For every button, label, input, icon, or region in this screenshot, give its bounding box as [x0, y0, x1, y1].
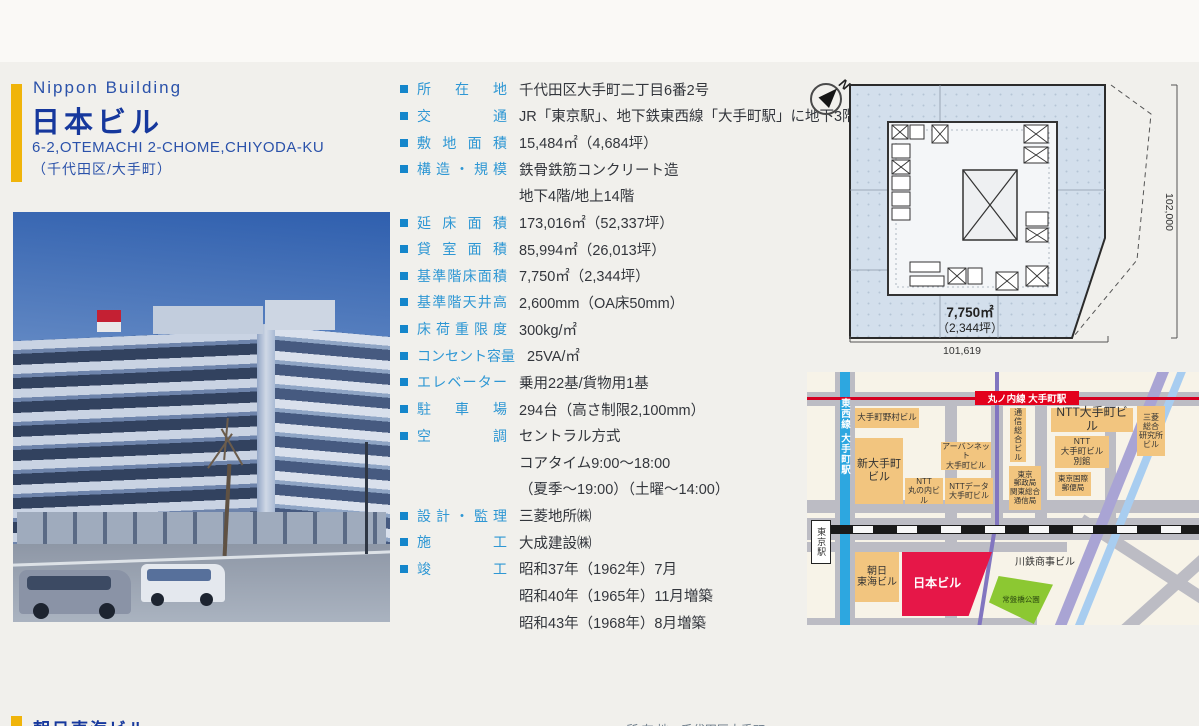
spec-bullet-icon: [400, 352, 408, 360]
spec-value: 千代田区大手町二丁目6番2号: [519, 79, 709, 100]
spec-label: 延床面積: [417, 213, 507, 233]
spec-value: 三菱地所㈱: [519, 505, 592, 526]
spec-value: 乗用22基/貨物用1基: [519, 372, 649, 393]
spec-value: 昭和40年（1965年）11月増築: [519, 585, 713, 606]
map-building-label: 大手町野村ビル: [857, 413, 917, 423]
spec-label: 設計・監理: [417, 506, 507, 526]
map-building-label: 郵便局: [1062, 484, 1085, 493]
building-footprint: [888, 122, 1057, 295]
spec-label: 貸室面積: [417, 239, 507, 259]
spec-bullet-icon: [400, 85, 408, 93]
partial-next-entry: 朝日東海ビル ■所 在 地 千代田区大手町: [11, 713, 1199, 726]
map-building-label: 通信局: [1014, 497, 1037, 506]
spec-value: 173,016㎡（52,337坪）: [519, 212, 674, 233]
spec-label: 空調: [417, 426, 507, 446]
map-building-label: NTT大手町ビル: [1051, 406, 1133, 434]
spec-bullet-icon: [400, 565, 408, 573]
spec-label: 交通: [417, 106, 507, 126]
map-building-urbannet-otemachi: アーバンネット大手町ビル: [941, 442, 991, 470]
map-building-tsushin-sogo: 通信総合ビル: [1010, 408, 1026, 462]
spec-label: コンセント容量: [417, 346, 515, 366]
spec-value: 300kg/㎡: [519, 319, 577, 340]
spec-row: 貸室面積85,994㎡（26,013坪）: [400, 236, 800, 263]
map-building-label: 川鉄商事ビル: [1015, 557, 1075, 569]
page-top-margin: [0, 0, 1199, 62]
accent-bar: [11, 84, 22, 182]
spec-value: 大成建設㈱: [519, 532, 592, 553]
spec-label: 構造・規模: [417, 159, 507, 179]
map-building-label: 通信総合ビル: [1013, 408, 1022, 462]
spec-bullet-icon: [400, 219, 408, 227]
map-building-label: 大手町ビル: [949, 491, 989, 500]
map-building-tokiwabashi-park: 常盤橋公園: [989, 576, 1053, 624]
spec-bullet-icon: [400, 378, 408, 386]
next-entry-spec-fragment: ■所 在 地 千代田区大手町: [619, 721, 765, 726]
spec-value: 鉄骨鉄筋コンクリート造: [519, 159, 679, 180]
spec-row: 駐車場294台（高さ制限2,100mm）: [400, 396, 800, 423]
map-building-label: NTTデータ: [949, 482, 989, 491]
map-building-asahi-tokai: 朝日東海ビル: [855, 552, 899, 602]
plan-height-dimension: 102,000: [1163, 193, 1175, 231]
spec-value: セントラル方式: [519, 425, 621, 446]
map-building-label: 丸の内ビル: [905, 486, 943, 504]
map-building-ntt-otemachi: NTT大手町ビル: [1051, 408, 1133, 432]
spec-row: 基準階床面積7,750㎡（2,344坪）: [400, 262, 800, 289]
spec-row: 設計・監理三菱地所㈱: [400, 502, 800, 529]
spec-label: 基準階天井高: [417, 292, 507, 312]
map-building-label: 東海ビル: [857, 577, 897, 589]
map-building-mitsubishi-research: 三菱総合研究所ビル: [1137, 406, 1165, 456]
spec-row: 敷地面積15,484㎡（4,684坪）: [400, 129, 800, 156]
spec-value: （夏季～19:00）（土曜～14:00）: [519, 478, 729, 499]
photo-penthouse: [153, 306, 263, 334]
spec-row: 基準階天井高2,600mm（OA床50mm）: [400, 289, 800, 316]
north-compass-icon: N: [811, 76, 853, 114]
spec-row: 地下4階/地上14階: [400, 183, 800, 210]
spec-label: 所在地: [417, 79, 507, 99]
spec-value: 25VA/㎡: [527, 345, 580, 366]
photo-roof-sign: [97, 310, 121, 332]
address-en: 6-2,OTEMACHI 2-CHOME,CHIYODA-KU: [32, 139, 324, 156]
map-building-label: アーバンネット: [941, 442, 991, 460]
spec-row: コアタイム9:00～18:00: [400, 449, 800, 476]
spec-bullet-icon: [400, 432, 408, 440]
map-building-label: 朝日: [867, 566, 887, 578]
map-building-label: 常盤橋公園: [1002, 596, 1040, 605]
spec-bullet-icon: [400, 165, 408, 173]
spec-bullet-icon: [400, 139, 408, 147]
plan-area-tsubo-label: （2,344坪）: [937, 321, 1003, 335]
map-building-label: 研究所: [1139, 431, 1163, 440]
map-building-tokyo-yuseikyoku: 東京郵政局関東総合通信局: [1009, 466, 1041, 510]
spec-row: 昭和43年（1968年）8月増築: [400, 609, 800, 636]
map-building-label: 大手町ビル: [946, 461, 986, 470]
spec-row: エレベーター乗用22基/貨物用1基: [400, 369, 800, 396]
map-building-label: 三菱: [1143, 413, 1159, 422]
photo-penthouse-2: [265, 300, 335, 330]
map-building-nippon-building: 日本ビル: [902, 552, 992, 616]
spec-value: 7,750㎡（2,344坪）: [519, 265, 650, 286]
spec-value: 2,600mm（OA床50mm）: [519, 292, 684, 313]
spec-row: 所在地千代田区大手町二丁目6番2号: [400, 76, 800, 103]
map-building-otemachi-nomura: 大手町野村ビル: [855, 408, 919, 428]
map-building-label: 新大手町: [857, 458, 901, 471]
spec-row: 交通JR「東京駅」、地下鉄東西線「大手町駅」に地下3階で直結: [400, 103, 800, 130]
map-building-tokyo-intl-post: 東京国際郵便局: [1055, 472, 1091, 496]
spec-bullet-icon: [400, 272, 408, 280]
spec-bullet-icon: [400, 112, 408, 120]
spec-row: 竣工昭和37年（1962年）7月: [400, 556, 800, 583]
map-building-tokyo-station: 東京駅: [811, 520, 831, 564]
spec-value: 294台（高さ制限2,100mm）: [519, 399, 705, 420]
spec-row: 延床面積173,016㎡（52,337坪）: [400, 209, 800, 236]
spec-row: 床荷重限度300kg/㎡: [400, 316, 800, 343]
elevator-core: [963, 170, 1017, 240]
spec-bullet-icon: [400, 405, 408, 413]
spec-row: 構造・規模鉄骨鉄筋コンクリート造: [400, 156, 800, 183]
spec-bullet-icon: [400, 538, 408, 546]
plan-area-label: 7,750㎡: [946, 304, 994, 320]
tozai-station-label: 東西線 大手町駅: [840, 398, 851, 475]
spec-value: 地下4階/地上14階: [519, 185, 634, 206]
spec-bullet-icon: [400, 245, 408, 253]
photo-car-van: [19, 570, 131, 614]
spec-value: 15,484㎡（4,684坪）: [519, 132, 658, 153]
next-entry-title: 朝日東海ビル: [33, 715, 147, 726]
map-building-label: ビル: [868, 471, 890, 484]
spec-value: 昭和43年（1968年）8月増築: [519, 612, 706, 633]
building-name-en: Nippon Building: [33, 78, 182, 98]
spec-row: 空調セントラル方式: [400, 422, 800, 449]
map-building-label: 東京駅: [816, 527, 826, 557]
marunouchi-station-banner: 丸ノ内線 大手町駅: [975, 391, 1079, 405]
spec-value: 85,994㎡（26,013坪）: [519, 239, 666, 260]
spec-row: コンセント容量25VA/㎡: [400, 342, 800, 369]
spec-label: 床荷重限度: [417, 319, 507, 339]
spec-row: （夏季～19:00）（土曜～14:00）: [400, 476, 800, 503]
map-building-ntt-marunouchi: NTT丸の内ビル: [905, 478, 943, 504]
district-map: 東西線 大手町駅 丸ノ内線 大手町駅 大手町野村ビル新大手町ビルアーバンネット大…: [807, 372, 1199, 625]
photo-storefront-band: [17, 512, 386, 546]
spec-bullet-icon: [400, 512, 408, 520]
spec-row: 施工大成建設㈱: [400, 529, 800, 556]
map-building-label: ビル: [1143, 440, 1159, 449]
map-building-label: 日本ビル: [913, 577, 961, 591]
floor-plan: N: [800, 70, 1199, 362]
spec-label: 基準階床面積: [417, 266, 507, 286]
spec-label: 竣工: [417, 559, 507, 579]
map-building-ntt-data-otemachi: NTTデータ大手町ビル: [945, 478, 993, 504]
plan-width-dimension: 101,619: [943, 345, 981, 357]
map-building-kawatetsu-shoji: 川鉄商事ビル: [1003, 556, 1087, 570]
photo-car-white-van: [141, 564, 225, 602]
photo-signal-pole: [365, 442, 368, 554]
map-building-label: 総合: [1143, 422, 1159, 431]
next-entry-accent-bar: [11, 716, 22, 726]
spec-label: エレベーター: [417, 372, 507, 392]
building-name-ja: 日本ビル: [31, 99, 163, 141]
map-building-shin-otemachi: 新大手町ビル: [855, 438, 903, 504]
jr-railway: [829, 525, 1199, 534]
spec-label: 敷地面積: [417, 133, 507, 153]
spec-label: 駐車場: [417, 399, 507, 419]
map-building-label: 別館: [1073, 457, 1090, 467]
spec-bullet-icon: [400, 325, 408, 333]
spec-value: 昭和37年（1962年）7月: [519, 558, 677, 579]
spec-list: 所在地千代田区大手町二丁目6番2号交通JR「東京駅」、地下鉄東西線「大手町駅」に…: [400, 76, 800, 635]
spec-row: 昭和40年（1965年）11月増築: [400, 582, 800, 609]
address-ja: （千代田区/大手町）: [32, 159, 172, 179]
map-building-ntt-otemachi-annex: NTT大手町ビル別館: [1055, 436, 1109, 468]
spec-value: コアタイム9:00～18:00: [519, 452, 670, 473]
spec-label: 施工: [417, 532, 507, 552]
spec-bullet-icon: [400, 298, 408, 306]
building-photo: [13, 212, 390, 622]
